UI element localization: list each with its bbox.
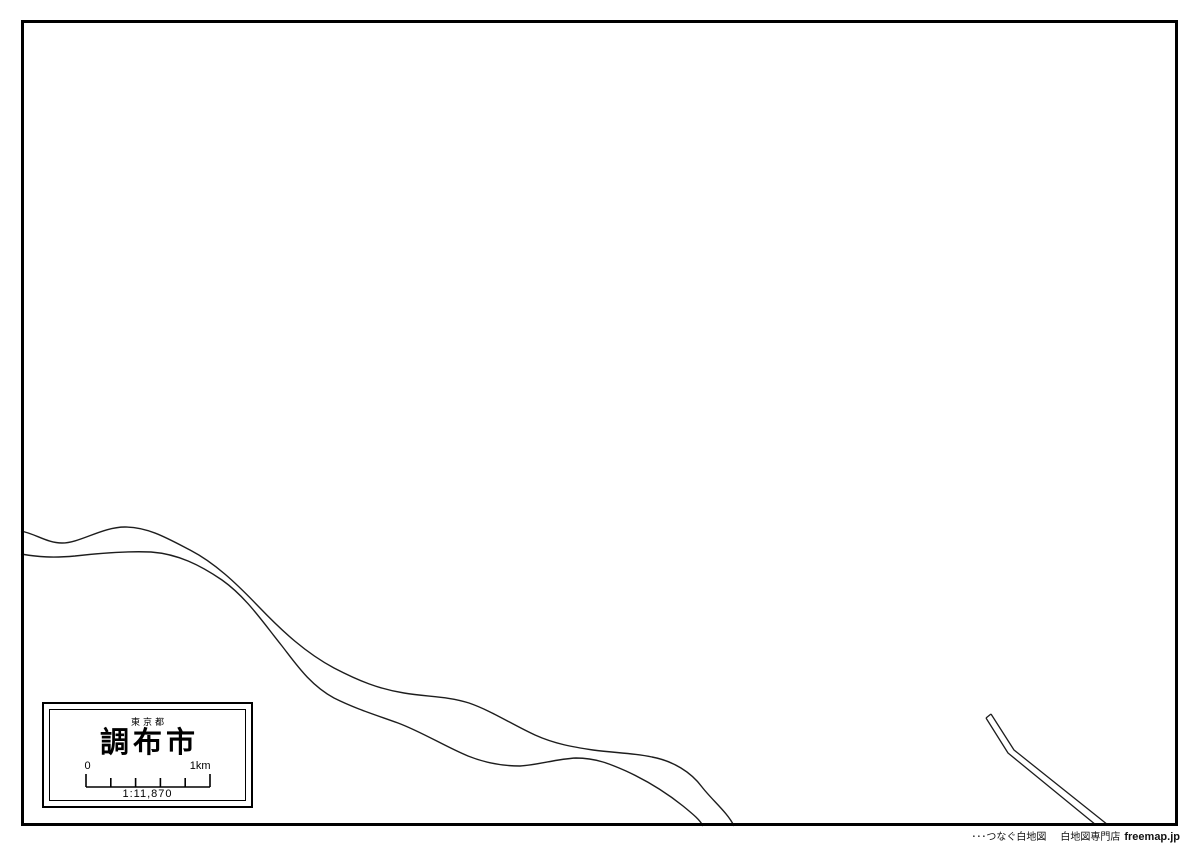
channel-end-cap-line [986, 714, 991, 718]
legend-inner-frame: 東京都 調布市 0 1km [49, 709, 246, 801]
city-title: 調布市 [96, 729, 199, 758]
scale-ratio-label: 1:11,870 [122, 789, 172, 800]
scale-bar-labels: 0 1km [85, 761, 211, 772]
scale-bar: 0 1km 1:11,870 [85, 761, 211, 800]
channel-right-edge-line [991, 714, 1108, 825]
legend-box: 東京都 調布市 0 1km [42, 702, 253, 808]
blank-map-page: 東京都 調布市 0 1km [0, 0, 1200, 848]
footer-credit: ･･･つなぐ白地図 白地図専門店 freemap.jp [971, 828, 1180, 843]
scale-end-label: 1km [190, 761, 211, 772]
scale-ruler-icon [85, 773, 211, 788]
scale-start-label: 0 [85, 761, 91, 772]
footer-brand: freemap.jp [1124, 831, 1180, 843]
footer-store-name: 白地図専門店 [1060, 828, 1120, 843]
footer-tagline: ･･･つなぐ白地図 [971, 828, 1046, 843]
